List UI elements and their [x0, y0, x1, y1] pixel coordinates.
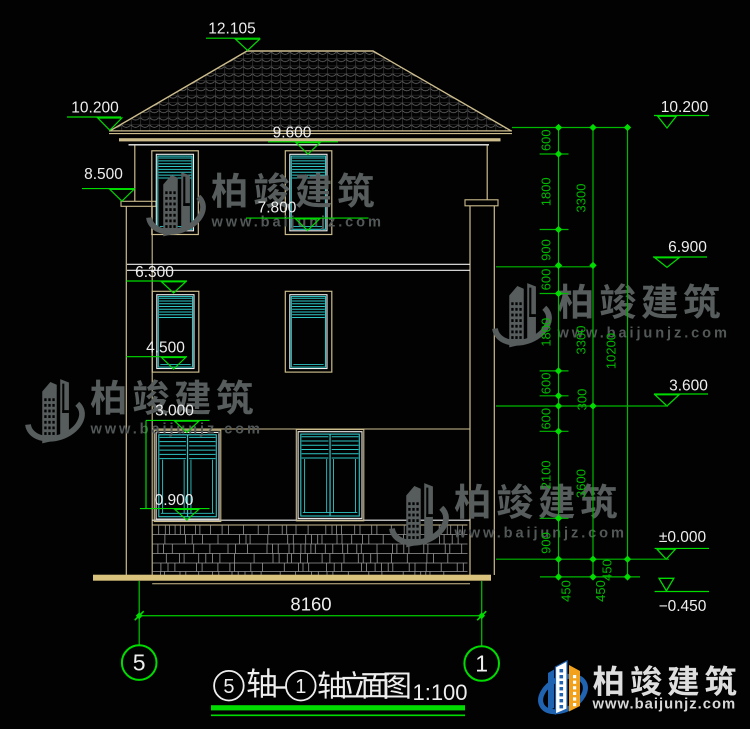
svg-text:600: 600: [539, 129, 554, 151]
svg-text:3.000: 3.000: [155, 403, 194, 420]
svg-text:300: 300: [575, 389, 590, 411]
svg-text:−0.450: −0.450: [659, 598, 707, 615]
svg-text:www.baijunjz.com: www.baijunjz.com: [90, 422, 263, 438]
svg-text:1: 1: [295, 676, 306, 698]
svg-text:3300: 3300: [574, 326, 589, 355]
svg-text:3600: 3600: [574, 469, 589, 498]
svg-text:600: 600: [539, 408, 554, 430]
svg-text:3300: 3300: [574, 184, 589, 213]
svg-text:600: 600: [539, 269, 554, 291]
svg-text:8.500: 8.500: [84, 166, 123, 183]
svg-text:www.baijunjz.com: www.baijunjz.com: [592, 697, 737, 713]
svg-text:7.800: 7.800: [258, 200, 297, 217]
svg-text:8160: 8160: [290, 594, 331, 615]
svg-text:6.300: 6.300: [135, 264, 174, 281]
svg-text:900: 900: [539, 532, 554, 554]
svg-text:10.200: 10.200: [661, 99, 709, 116]
svg-text:0.900: 0.900: [155, 492, 194, 509]
svg-text:450: 450: [559, 580, 574, 602]
svg-text:9.600: 9.600: [273, 125, 312, 142]
svg-text:1800: 1800: [539, 318, 554, 347]
svg-text:900: 900: [539, 239, 554, 261]
svg-text:2100: 2100: [539, 460, 554, 489]
svg-text:6.900: 6.900: [668, 239, 707, 256]
svg-text:5: 5: [133, 650, 146, 676]
svg-text:1800: 1800: [539, 177, 554, 206]
svg-text:1:100: 1:100: [412, 680, 467, 705]
svg-text:450: 450: [600, 559, 615, 581]
svg-text:1: 1: [475, 651, 488, 677]
svg-text:4.500: 4.500: [146, 340, 185, 357]
svg-text:600: 600: [539, 373, 554, 395]
svg-text:www.baijunjz.com: www.baijunjz.com: [211, 215, 384, 231]
svg-text:5: 5: [223, 676, 234, 698]
svg-text:±0.000: ±0.000: [659, 529, 707, 546]
svg-text:10200: 10200: [604, 333, 619, 369]
svg-text:450: 450: [593, 580, 608, 602]
svg-text:10.200: 10.200: [71, 100, 119, 117]
svg-text:3.600: 3.600: [669, 378, 708, 395]
svg-text:12.105: 12.105: [208, 21, 255, 38]
